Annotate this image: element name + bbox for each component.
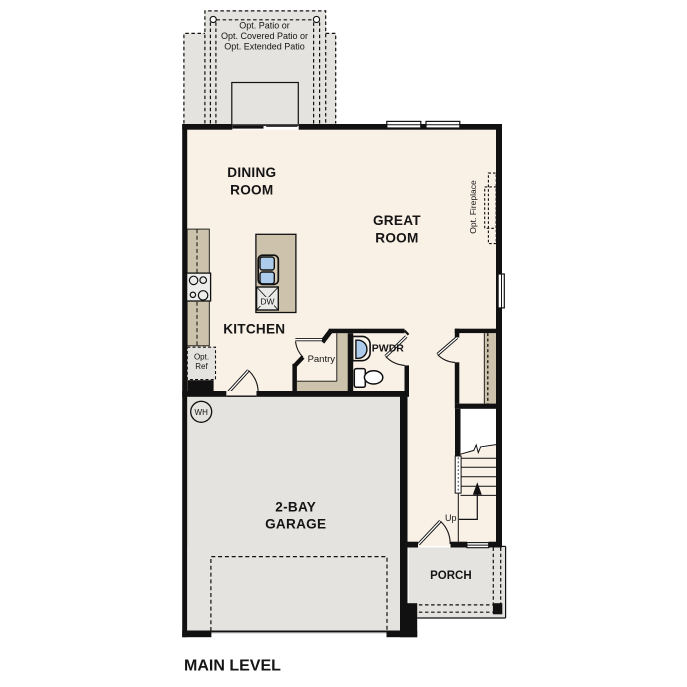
- svg-text:PORCH: PORCH: [430, 570, 472, 582]
- svg-text:Opt. Covered Patio or: Opt. Covered Patio or: [221, 31, 308, 41]
- svg-text:GARAGE: GARAGE: [265, 517, 326, 532]
- svg-text:PWDR: PWDR: [372, 342, 404, 354]
- svg-text:2-BAY: 2-BAY: [275, 500, 316, 515]
- svg-text:KITCHEN: KITCHEN: [223, 321, 285, 336]
- svg-text:GREAT: GREAT: [373, 213, 421, 228]
- svg-text:Ref: Ref: [195, 362, 208, 371]
- svg-text:DINING: DINING: [227, 165, 276, 180]
- svg-text:Opt.: Opt.: [194, 352, 209, 361]
- svg-text:WH: WH: [195, 408, 209, 417]
- svg-text:DW: DW: [260, 297, 274, 307]
- svg-text:Opt. Patio or: Opt. Patio or: [239, 21, 290, 31]
- svg-text:MAIN LEVEL: MAIN LEVEL: [184, 658, 281, 675]
- svg-text:Opt. Extended Patio: Opt. Extended Patio: [224, 42, 305, 52]
- svg-text:ROOM: ROOM: [375, 230, 418, 245]
- svg-text:ROOM: ROOM: [230, 182, 273, 197]
- svg-text:Opt. Fireplace: Opt. Fireplace: [468, 180, 478, 234]
- svg-text:Up: Up: [445, 513, 457, 523]
- svg-text:Pantry: Pantry: [308, 354, 336, 365]
